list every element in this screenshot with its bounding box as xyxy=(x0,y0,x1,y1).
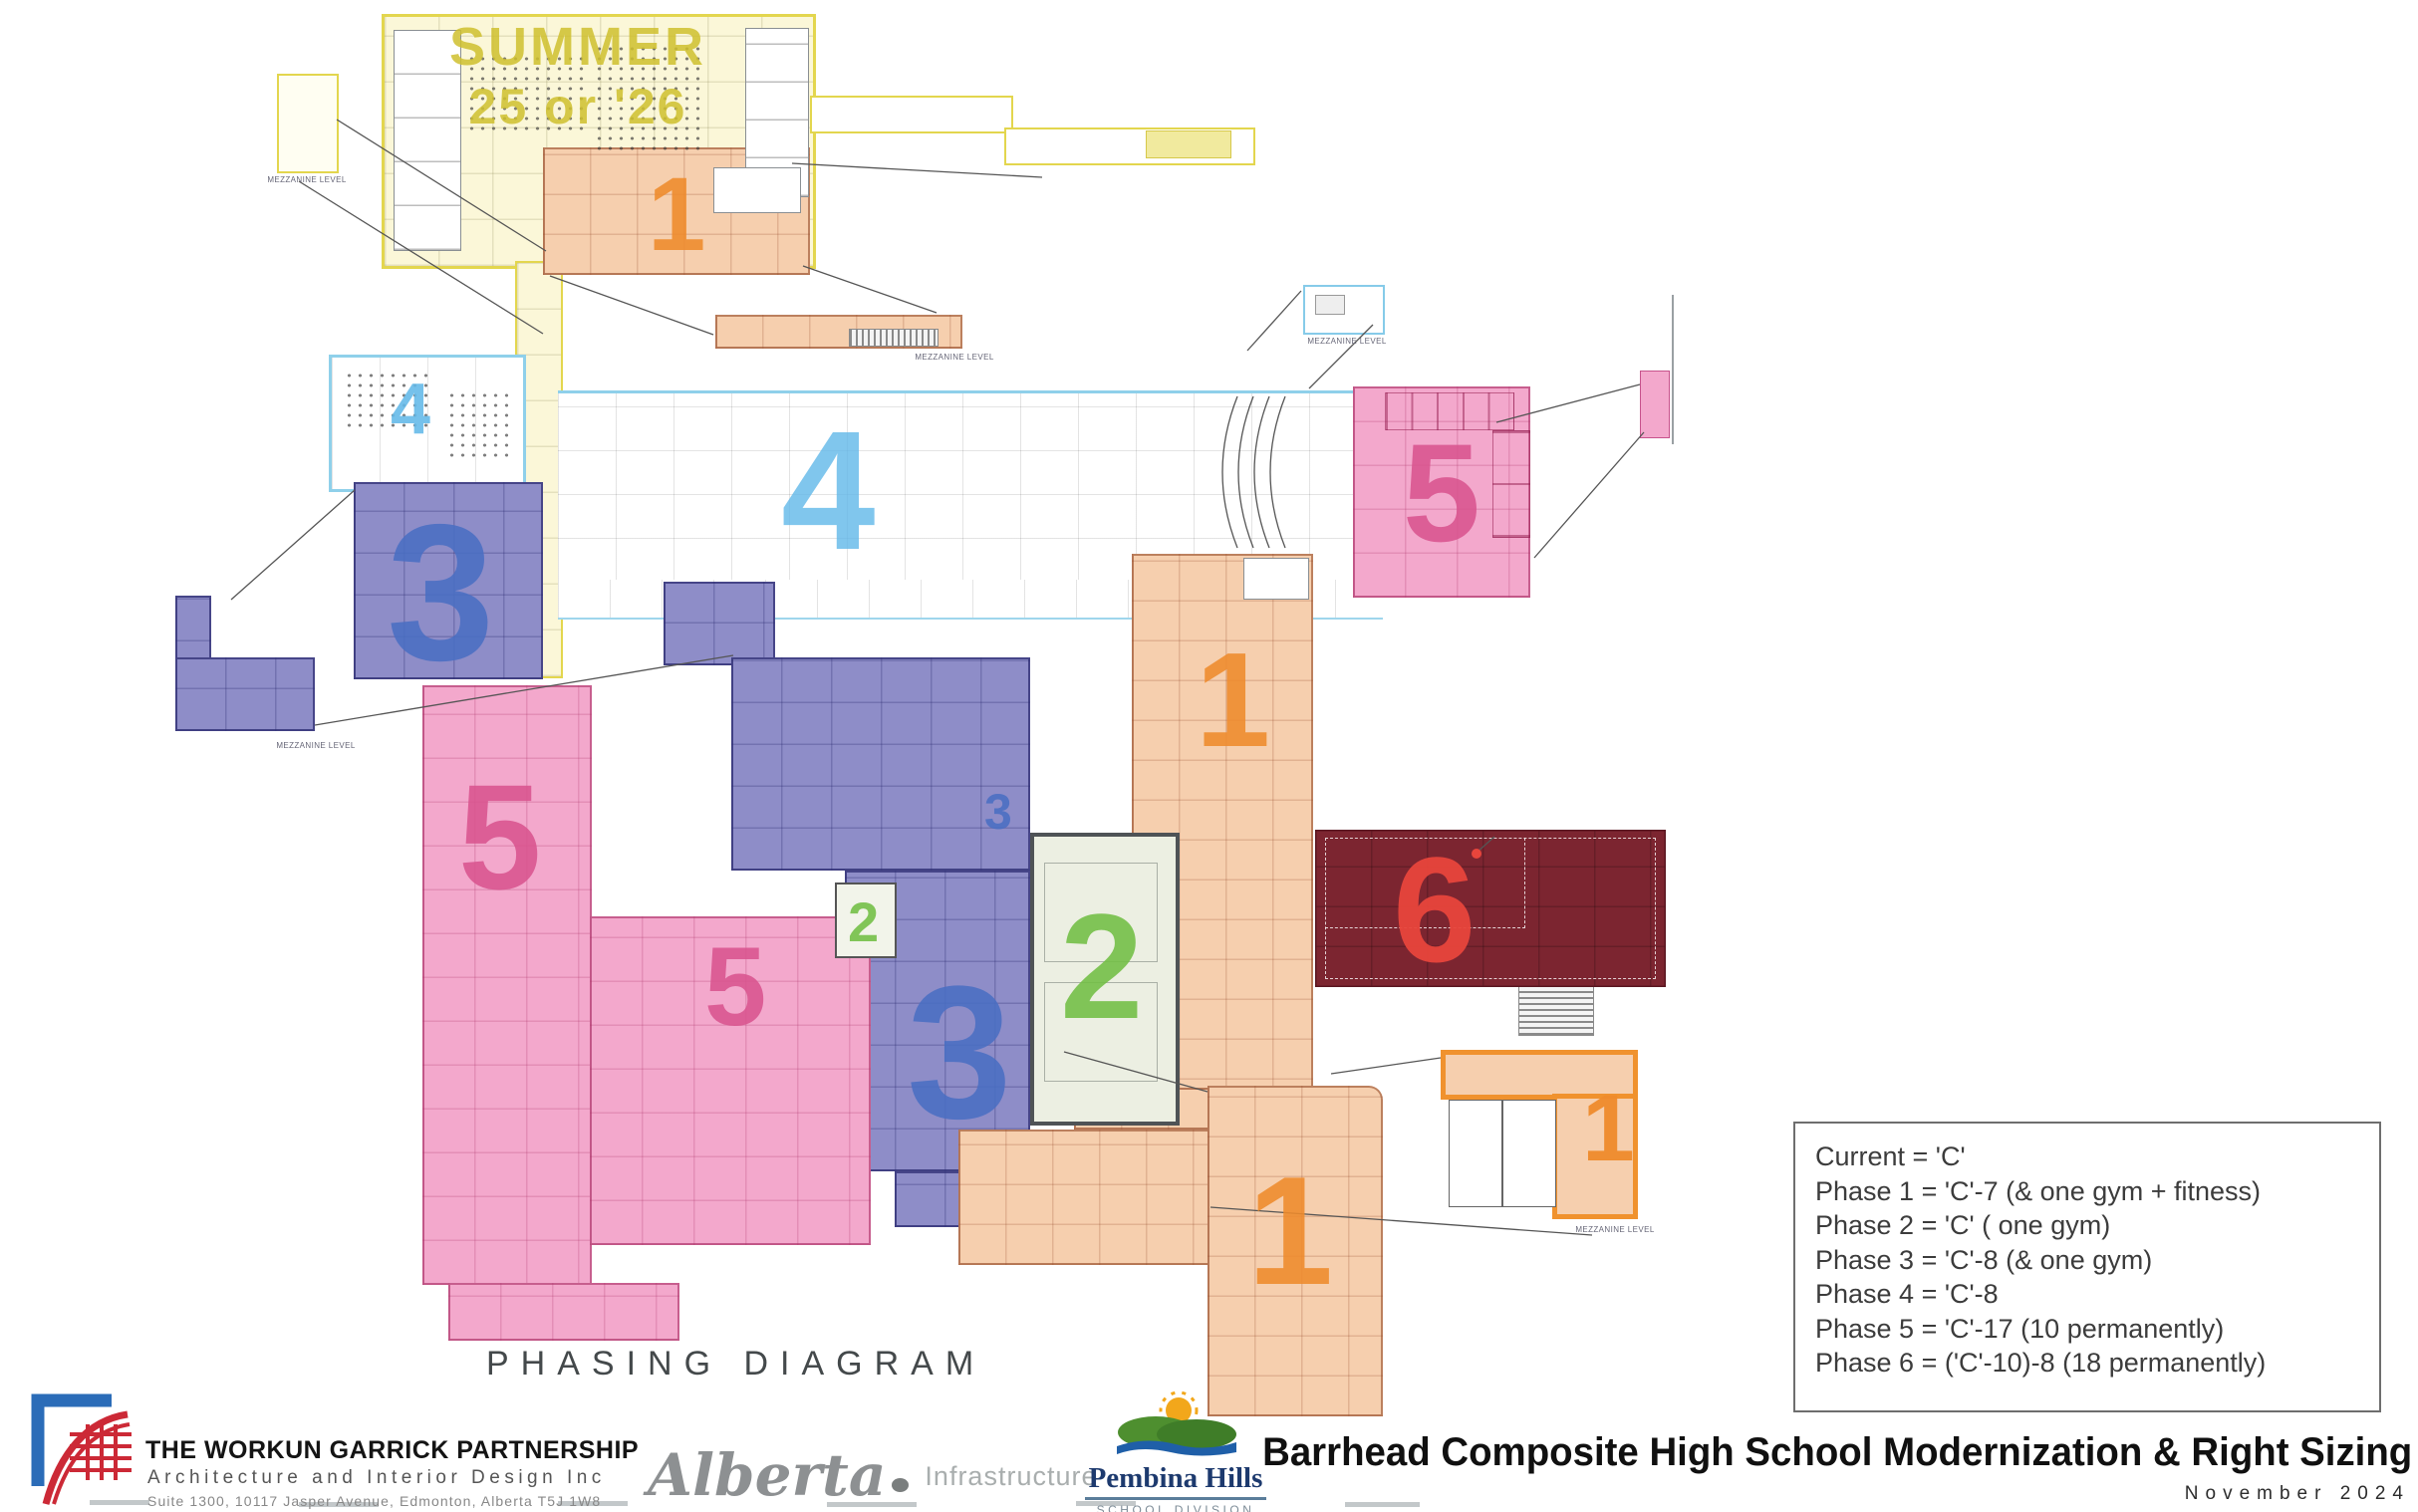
firm-name: THE WORKUN GARRICK PARTNERSHIP xyxy=(145,1436,639,1465)
phase2-label: 2 xyxy=(1060,891,1143,1041)
highlighted-room xyxy=(1146,130,1231,158)
phasing-diagram-sheet: MEZZANINE LEVEL SUMMER 25 or '26 1 MEZZA… xyxy=(0,0,2418,1512)
firm-address: Suite 1300, 10117 Jasper Avenue, Edmonto… xyxy=(147,1493,601,1509)
phase1-label-south: 1 xyxy=(1247,1153,1333,1308)
legend-line: Current = 'C' xyxy=(1815,1139,2379,1174)
room xyxy=(713,167,801,213)
phase2-label-small: 2 xyxy=(848,894,879,950)
room xyxy=(1315,295,1345,315)
phase3-label-main: 3 xyxy=(907,958,1012,1147)
classroom-seating-dots xyxy=(446,390,508,462)
summer-note-line2: 25 or '26 xyxy=(448,78,707,135)
room xyxy=(1502,1100,1556,1207)
summer-note-line1: SUMMER xyxy=(448,16,707,78)
mezzanine-caption: MEZZANINE LEVEL xyxy=(1550,1225,1680,1234)
phase1-label: 1 xyxy=(648,162,705,267)
pembina-name: Pembina Hills xyxy=(1085,1462,1267,1500)
legend-line: Phase 3 = 'C'-8 (& one gym) xyxy=(1815,1243,2379,1278)
room-column xyxy=(1492,430,1530,538)
phase3-area-center xyxy=(664,582,775,665)
alberta-infrastructure-logo: Alberta Infrastructure xyxy=(648,1418,1097,1504)
alberta-logo-dot-icon xyxy=(892,1478,909,1492)
alberta-wordmark: Alberta xyxy=(648,1446,886,1504)
stair-hatch xyxy=(849,329,939,347)
firm-tagline: Architecture and Interior Design Inc xyxy=(147,1467,606,1489)
phase5-area-foot xyxy=(448,1283,679,1341)
phase4-label-main: 4 xyxy=(781,406,876,576)
summer-note: SUMMER 25 or '26 xyxy=(448,16,707,135)
project-date: November 2024 xyxy=(2185,1483,2410,1505)
drawing-title: PHASING DIAGRAM xyxy=(486,1345,985,1384)
legend-box: Current = 'C' Phase 1 = 'C'-7 (& one gym… xyxy=(1793,1122,2381,1412)
mezzanine-caption: MEZZANINE LEVEL xyxy=(1297,337,1397,346)
phase3-mezzanine-inset xyxy=(175,657,315,731)
phase1-label-fitness: 1 xyxy=(1582,1082,1635,1176)
scan-artifact xyxy=(1345,1502,1420,1507)
legend-line: Phase 6 = ('C'-10)-8 (18 permanently) xyxy=(1815,1346,2379,1381)
legend-line: Phase 5 = 'C'-17 (10 permanently) xyxy=(1815,1312,2379,1347)
phase1-label-east: 1 xyxy=(1196,632,1270,767)
phase5-label-west: 5 xyxy=(458,762,541,911)
phase6-label: 6 xyxy=(1393,835,1476,984)
mezzanine-caption: MEZZANINE LEVEL xyxy=(247,175,367,184)
room xyxy=(1243,558,1309,600)
stair-hatch xyxy=(1518,982,1594,1036)
wall-line xyxy=(1672,295,1674,444)
phase3-label-small: 3 xyxy=(984,787,1012,837)
mezzanine-caption: MEZZANINE LEVEL xyxy=(251,741,381,750)
phase5-label-south: 5 xyxy=(704,931,766,1043)
phase3-label-west: 3 xyxy=(387,496,494,690)
pembina-division: SCHOOL DIVISION xyxy=(1097,1503,1255,1512)
legend-line: Phase 4 = 'C'-8 xyxy=(1815,1277,2379,1312)
mezzanine-inset-yellow xyxy=(277,74,339,173)
legend-line: Phase 2 = 'C' ( one gym) xyxy=(1815,1208,2379,1243)
pembina-hills-logo: Pembina Hills SCHOOL DIVISION xyxy=(1071,1386,1280,1512)
project-title: Barrhead Composite High School Moderniza… xyxy=(1262,1430,2412,1475)
legend-line: Phase 1 = 'C'-7 (& one gym + fitness) xyxy=(1815,1174,2379,1209)
mezzanine-caption: MEZZANINE LEVEL xyxy=(885,353,1024,362)
summer-scope-corridor-east xyxy=(810,96,1013,133)
phase5-label-northeast: 5 xyxy=(1403,423,1480,563)
phase5-detached-room xyxy=(1640,371,1670,438)
room xyxy=(1449,1100,1502,1207)
phase4-label-small: 4 xyxy=(391,374,430,445)
workun-garrick-logo-icon xyxy=(30,1390,137,1506)
pembina-hills-logo-icon xyxy=(1101,1386,1250,1462)
